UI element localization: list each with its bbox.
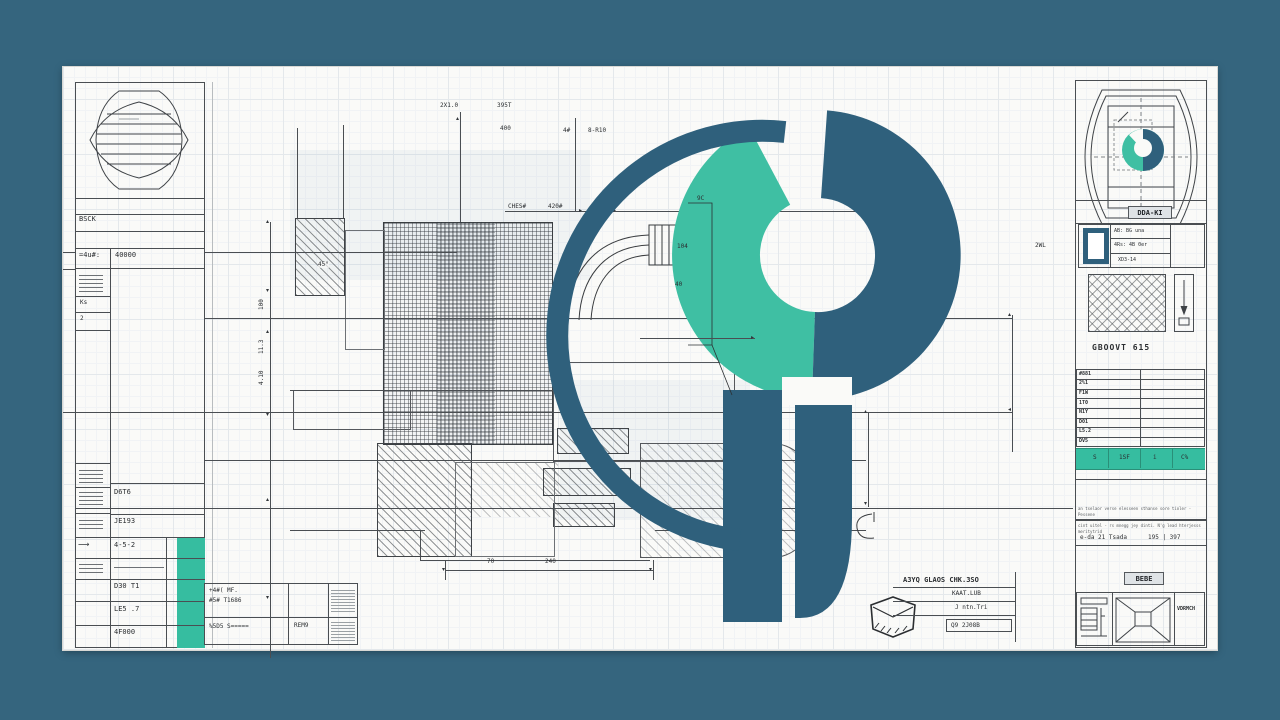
fineprint-lines: [331, 621, 355, 641]
pin-icon: [1176, 276, 1192, 330]
side-label-a: Ks: [80, 300, 87, 306]
left-barrel-part-view: [85, 88, 193, 192]
dashed-row: [114, 564, 164, 568]
right-panel-line: [1075, 545, 1207, 546]
bottom-table-cell: #5# T1686: [209, 598, 242, 604]
row-label: 4F000: [114, 629, 135, 636]
left-panel-line: [75, 198, 205, 199]
part-outline: [293, 390, 411, 430]
info-divider: [1170, 224, 1171, 268]
arrowhead: ▾: [266, 288, 269, 294]
left-panel-line: [75, 312, 110, 313]
angle-label: 45°: [318, 262, 329, 268]
edge-stub: [63, 269, 75, 270]
ref-label: 2WL: [1035, 243, 1046, 249]
codes-row-line: [1076, 427, 1205, 428]
spec-code: =4u#:: [79, 252, 100, 259]
reference-line: [205, 252, 457, 253]
logo-dark-sector: [812, 110, 961, 400]
row-label: 4-5-2: [114, 542, 135, 549]
sig-block-border: [1015, 572, 1016, 642]
teal-cell: C%: [1181, 455, 1188, 461]
code-cell: L5.2: [1079, 429, 1091, 434]
codes-row-line: [1076, 379, 1205, 380]
mini-logo-icon: [1122, 129, 1164, 171]
row-label: LE5 .7: [114, 606, 139, 613]
brand-logo: [560, 95, 980, 655]
dim-line-right: [1012, 315, 1013, 452]
dim-label: 70: [487, 559, 494, 565]
codes-row-line: [1076, 437, 1205, 438]
mini-table-icon: [1079, 596, 1109, 642]
code-cell: 2%1: [1079, 381, 1088, 386]
corner-divider: [1112, 592, 1113, 646]
arrowhead: ▴: [456, 116, 459, 122]
left-panel-line: [75, 487, 110, 488]
code-cell: #881: [1079, 372, 1091, 377]
fineprint-lines: [79, 563, 103, 573]
perspective-box-icon: [1114, 594, 1172, 646]
construction-line: [297, 128, 298, 218]
bottom-table-divider: [288, 583, 289, 645]
hatch-sample: [1088, 274, 1166, 332]
corner-label: VDRMCH: [1177, 607, 1195, 612]
wedge-label: 104: [677, 244, 688, 250]
wedge-label: 40: [675, 282, 682, 288]
side-label-b: 2: [80, 316, 84, 322]
dim-label-rotated: 4.10: [259, 371, 265, 385]
part-edge: [420, 530, 421, 560]
left-panel-line: [75, 513, 110, 514]
teal-row-divider: [1172, 448, 1173, 468]
dim-tick: [445, 560, 446, 580]
right-panel-line: [1075, 200, 1207, 201]
row-label: D6T6: [114, 489, 131, 496]
logo-left-bar: [723, 390, 782, 622]
leader-label: CHES#: [508, 204, 526, 210]
logo-white-gap: [782, 377, 852, 405]
dim-label: 2X1.0: [440, 103, 458, 109]
corner-divider: [1174, 592, 1175, 646]
dim-label: 240: [545, 559, 556, 565]
info-row: 4Rs: 4B 0er: [1114, 243, 1147, 248]
overlay-leader: [640, 338, 755, 339]
row-label: JE193: [114, 518, 135, 525]
left-panel-outer-line: [212, 82, 213, 648]
left-panel-line: [110, 483, 205, 484]
left-panel-line: [75, 231, 205, 232]
code-cell: DV5: [1079, 439, 1088, 444]
edge-stub: [63, 412, 75, 413]
fineprint-lines: [331, 588, 355, 612]
code-cell: D01: [1079, 420, 1088, 425]
arrowhead: ▴: [266, 329, 269, 335]
info-divider: [1110, 224, 1111, 268]
bottom-table-cell: REM9: [294, 623, 308, 629]
codes-row-line: [1076, 398, 1205, 399]
info-row: XD3-14: [1118, 258, 1136, 263]
left-panel-line: [75, 625, 205, 626]
part-edge: [290, 530, 425, 531]
left-panel-header: BSCK: [79, 216, 96, 223]
fineprint-lines: [79, 491, 103, 505]
notes-separator: [1075, 519, 1207, 521]
drawing-sheet: BSCK =4u#: 40000 Ks 2 ⟶ D6T6 JE193 4-5-2…: [63, 67, 1217, 650]
dim-label: 395T: [497, 103, 511, 109]
arrowhead: ▸: [751, 335, 754, 341]
arrowhead: ▴: [266, 219, 269, 225]
stamp-code-label: BEBE: [1124, 572, 1164, 585]
code-cell: F1W: [1079, 391, 1088, 396]
left-panel-line: [75, 579, 205, 580]
codes-row-line: [1076, 389, 1205, 390]
left-panel-line: [75, 601, 205, 602]
teal-row-divider: [1108, 448, 1109, 468]
logo-green-sector: [672, 127, 815, 400]
bottom-table-line: [204, 617, 358, 618]
teal-cell: i: [1153, 455, 1157, 461]
right-panel-line: [1075, 479, 1207, 480]
hatch-block-a: [295, 218, 345, 296]
notes-line: an tselaor verse elesseen sthanse sore t…: [1078, 506, 1205, 518]
left-panel-line: [75, 248, 205, 249]
dim-label-rotated: 11.3: [259, 340, 265, 354]
left-panel-line: [75, 558, 205, 559]
arrowhead: ◂: [1008, 407, 1011, 413]
codes-row-line: [1076, 418, 1205, 419]
section-title: GBOOVT 615: [1092, 344, 1150, 352]
arrowhead: ▴: [266, 497, 269, 503]
row-label: D30 T1: [114, 583, 139, 590]
left-panel-line: [75, 296, 110, 297]
left-panel-line: [75, 537, 205, 538]
fineprint-lines: [79, 467, 103, 483]
left-panel-divider: [166, 537, 167, 648]
teal-cell: S: [1093, 455, 1097, 461]
part-outline: [345, 230, 385, 350]
codes-row-line: [1076, 408, 1205, 409]
info-row: AB: BG una: [1114, 229, 1144, 234]
code-cell: N1Y: [1079, 410, 1088, 415]
info-row-line: [1110, 253, 1170, 254]
teal-row-divider: [1140, 448, 1141, 468]
part-edge: [290, 390, 555, 391]
notes-ref: 195 | 397: [1148, 535, 1181, 541]
dim-label: 400: [500, 126, 511, 132]
code-cell: 1T0: [1079, 401, 1088, 406]
info-row-line: [1110, 238, 1170, 239]
wedge-label: 9C: [697, 196, 704, 202]
arrowhead: ▴: [1008, 312, 1011, 318]
left-panel-line: [75, 330, 110, 331]
spec-value: 40000: [115, 252, 136, 259]
page-background: BSCK =4u#: 40000 Ks 2 ⟶ D6T6 JE193 4-5-2…: [0, 0, 1280, 720]
logo-cell-swatch: [1083, 228, 1109, 264]
teal-cell: 1SF: [1119, 455, 1130, 461]
left-panel-line: [75, 463, 110, 464]
bottom-table-cell: +4#( MF.: [209, 588, 238, 594]
edge-stub: [63, 252, 75, 253]
green-strip: [177, 537, 205, 648]
fineprint-lines: [79, 517, 103, 529]
part-outline: [455, 462, 555, 557]
arrowhead: ▾: [442, 567, 445, 573]
part-number-label: DDA-KI: [1128, 206, 1172, 219]
left-panel-line: [75, 268, 205, 269]
construction-line: [343, 125, 344, 218]
notes-ref: e-da 21 Tsada: [1080, 535, 1127, 541]
bottom-table-cell: %5D5 S=====: [209, 624, 249, 630]
logo-right-bar: [795, 405, 852, 618]
dim-extension-line: [460, 112, 461, 222]
bottom-table-divider: [328, 583, 329, 645]
arrow-glyph: ⟶: [78, 541, 89, 549]
dim-label-rotated: 100: [259, 299, 265, 310]
left-panel-line: [110, 514, 205, 515]
left-panel-divider: [110, 248, 111, 648]
fineprint-lines: [79, 272, 103, 292]
